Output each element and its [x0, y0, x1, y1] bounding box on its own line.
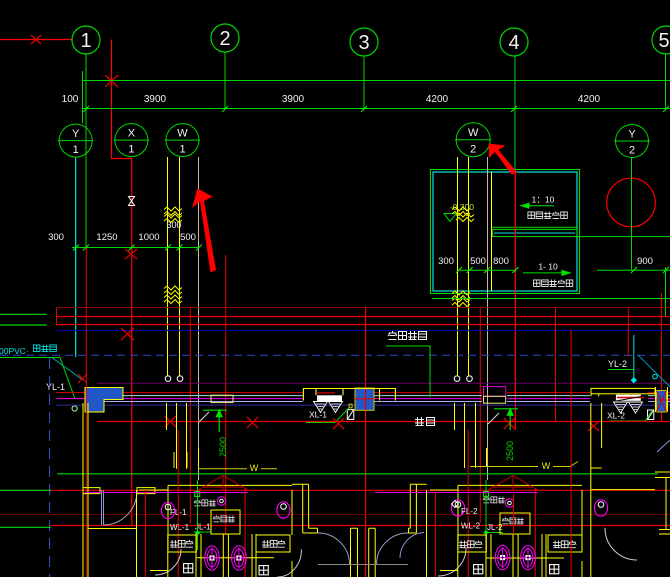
svg-text:3: 3 — [358, 32, 369, 54]
svg-text:2: 2 — [219, 28, 230, 50]
svg-text:300: 300 — [438, 256, 454, 267]
svg-text:1- 10: 1- 10 — [538, 262, 558, 272]
svg-text:2: 2 — [470, 144, 476, 156]
svg-text:4: 4 — [508, 32, 519, 54]
svg-text:-0.300: -0.300 — [450, 202, 474, 212]
svg-text:00PVC·: 00PVC· — [0, 346, 29, 356]
svg-text:900: 900 — [637, 256, 653, 267]
svg-text:FL-2: FL-2 — [461, 507, 478, 516]
svg-text:1: 1 — [179, 144, 185, 156]
svg-text:1250: 1250 — [96, 232, 117, 243]
svg-text:1: 1 — [80, 30, 91, 52]
svg-text:3900: 3900 — [144, 94, 167, 105]
svg-text:Y: Y — [628, 129, 636, 141]
svg-text:YL-1: YL-1 — [46, 382, 65, 392]
svg-text:XL-1: XL-1 — [309, 410, 327, 420]
svg-text:2500: 2500 — [505, 441, 515, 461]
svg-text:W: W — [250, 463, 259, 473]
svg-text:1：10: 1：10 — [532, 195, 555, 205]
svg-text:W: W — [542, 461, 551, 471]
svg-text:XL-2: XL-2 — [607, 411, 625, 421]
svg-text:YL-2: YL-2 — [608, 359, 627, 369]
svg-text:500: 500 — [180, 232, 196, 243]
svg-text:100: 100 — [62, 94, 79, 105]
svg-text:5: 5 — [658, 30, 669, 52]
svg-text:JL-2: JL-2 — [487, 523, 503, 532]
svg-text:1000: 1000 — [138, 232, 159, 243]
svg-text:300: 300 — [166, 220, 181, 230]
svg-text:X: X — [128, 128, 136, 140]
svg-text:4200: 4200 — [426, 94, 449, 105]
svg-text:WL-2: WL-2 — [461, 522, 481, 531]
svg-text:2500: 2500 — [218, 437, 228, 457]
svg-text:W: W — [468, 127, 479, 139]
svg-text:1: 1 — [73, 144, 79, 156]
svg-text:4200: 4200 — [578, 94, 601, 105]
svg-text:WL-1: WL-1 — [170, 523, 190, 532]
svg-text:2: 2 — [629, 145, 635, 157]
svg-text:800: 800 — [493, 256, 509, 267]
svg-text:3900: 3900 — [282, 94, 305, 105]
svg-text:W: W — [177, 128, 188, 140]
svg-text:1: 1 — [128, 144, 134, 156]
svg-text:500: 500 — [470, 256, 486, 267]
svg-text:Y: Y — [72, 128, 80, 140]
svg-text:300: 300 — [48, 232, 64, 243]
